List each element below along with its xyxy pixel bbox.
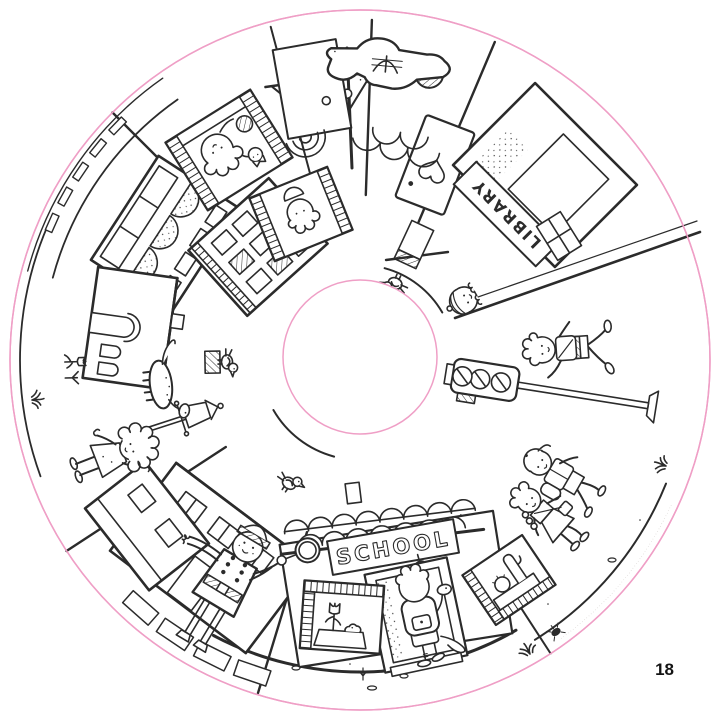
center-hole (283, 280, 437, 434)
tulip-window (300, 580, 385, 653)
coloring-page: LIBRARY (0, 0, 720, 720)
coloring-artwork: LIBRARY (0, 0, 720, 720)
page-number: 18 (655, 660, 674, 680)
chimney (345, 482, 361, 504)
